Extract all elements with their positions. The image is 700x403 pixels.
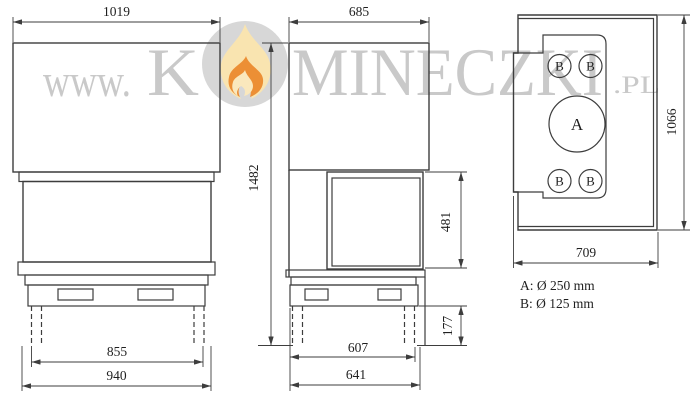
technical-drawing-page: www. K MINECZKI .PL: [0, 0, 700, 403]
side-bench-band: [286, 270, 425, 277]
side-plinth-strip: [291, 277, 416, 285]
dim-front-feet-span-label: 855: [107, 344, 128, 359]
side-drawer-panel: [290, 285, 418, 306]
dim-front-base-width-label: 940: [106, 368, 127, 383]
dim-plan-height-label: 1066: [664, 108, 679, 135]
side-vent-left: [305, 289, 328, 300]
dim-side-depth-label: 685: [349, 4, 370, 19]
dim-side-base-depth-label: 641: [346, 367, 366, 382]
side-door-frame-outer: [327, 172, 423, 269]
dim-total-height-label: 1482: [246, 165, 261, 192]
fireplace-dimension-drawing: www. K MINECZKI .PL: [0, 0, 700, 403]
outlet-b-label: B: [586, 59, 595, 74]
front-body-outline: [23, 182, 211, 263]
front-vent-left: [58, 289, 93, 300]
dim-plan-width-label: 709: [576, 245, 597, 260]
legend-line-b: B: Ø 125 mm: [520, 296, 594, 311]
watermark-www: www.: [43, 55, 131, 106]
front-vent-right: [138, 289, 173, 300]
dim-leg-height-label: 177: [440, 316, 455, 337]
side-door-frame-inner: [332, 178, 420, 266]
front-drawer-panel: [28, 285, 205, 306]
watermark: www. K MINECZKI .PL: [43, 21, 660, 110]
watermark-k: K: [147, 34, 199, 110]
front-plinth-strip: [25, 275, 208, 285]
dim-side-feet-span-label: 607: [348, 340, 369, 355]
flame-logo-icon: [202, 21, 288, 107]
front-legs-hidden-lines: [32, 306, 205, 345]
side-vent-right: [378, 289, 401, 300]
dim-front-width-label: 1019: [103, 4, 130, 19]
outlet-b-label: B: [555, 59, 564, 74]
front-shelf-band: [19, 172, 214, 182]
outlet-b-label: B: [555, 174, 564, 189]
front-bench-band: [18, 262, 215, 275]
outlet-a-label: A: [571, 115, 584, 134]
dim-door-height-label: 481: [438, 212, 453, 232]
outlet-b-label: B: [586, 174, 595, 189]
legend-line-a: A: Ø 250 mm: [520, 278, 595, 293]
